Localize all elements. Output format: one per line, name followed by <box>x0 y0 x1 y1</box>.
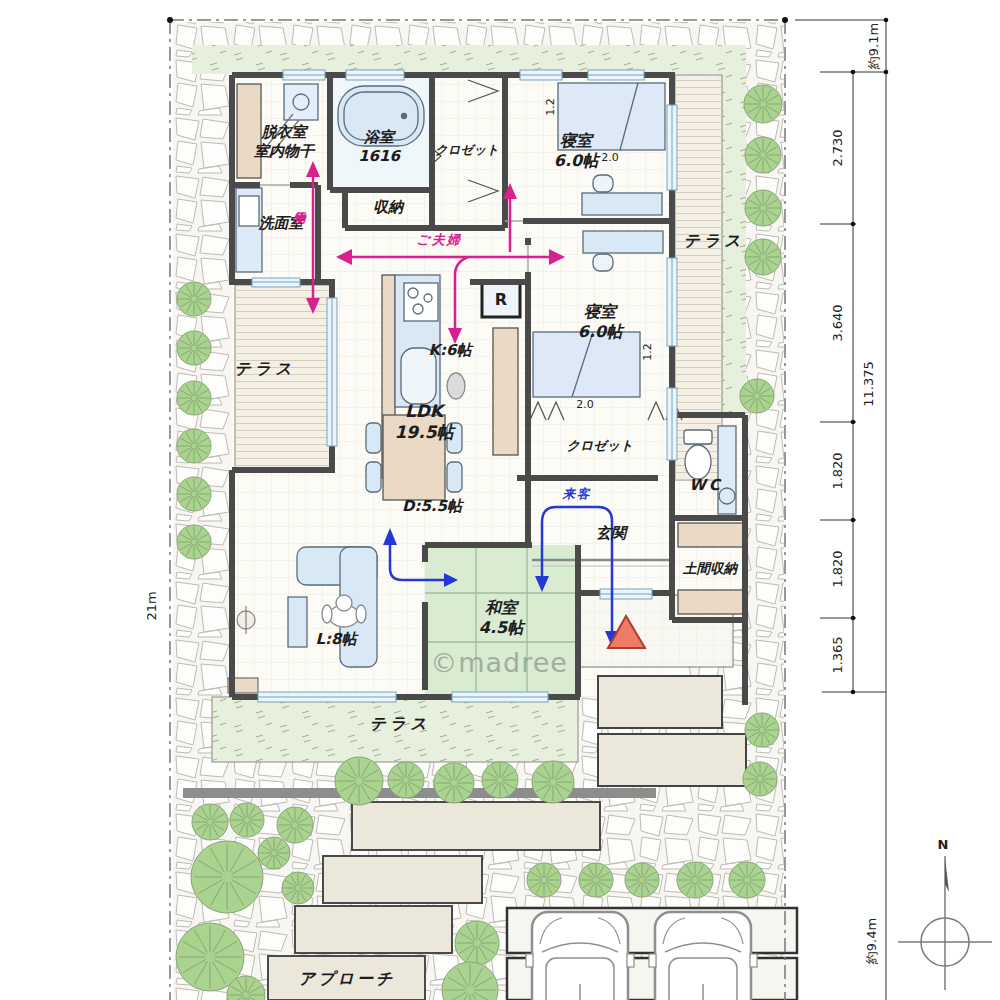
tatami-floor <box>425 545 578 694</box>
entrance-porch <box>580 595 746 786</box>
desk-icon <box>583 231 663 253</box>
dressing-cabinet <box>237 84 261 178</box>
tree-icon <box>177 525 211 559</box>
compass-icon <box>898 856 992 990</box>
chair-icon <box>593 175 613 192</box>
toilet-icon <box>684 430 712 479</box>
tree-icon <box>177 477 211 511</box>
side-table-icon <box>288 597 307 647</box>
deck-terrace-left <box>235 285 330 468</box>
tree-icon <box>455 921 499 965</box>
tree-icon <box>177 429 211 463</box>
tree-icon <box>625 863 659 897</box>
tree-icon <box>740 379 774 413</box>
tree-icon <box>744 85 782 123</box>
tree-icon <box>258 837 290 869</box>
tree-icon <box>177 331 211 365</box>
tree-icon <box>677 862 713 898</box>
tree-icon <box>277 807 313 843</box>
tree-icon <box>729 862 765 898</box>
tree-icon <box>482 762 518 798</box>
tree-icon <box>527 863 561 897</box>
washing-machine-icon <box>284 84 318 120</box>
tree-icon <box>335 757 383 805</box>
tree-icon <box>745 239 781 275</box>
tree-icon <box>743 762 777 796</box>
chair-icon <box>593 254 613 271</box>
sink-icon <box>401 348 436 404</box>
tree-icon <box>745 137 781 173</box>
doma-cabinet <box>678 590 743 614</box>
tree-icon <box>230 803 264 837</box>
dimension-lines <box>795 18 888 1000</box>
doma-cabinet <box>678 523 743 547</box>
approach-path <box>268 956 425 1000</box>
tree-icon <box>579 863 613 897</box>
bed-icon <box>533 332 640 397</box>
floorplan-page: 脱衣室室内物干 浴室1616 クロゼット 寝室6.0帖 1.2 2.0 収納 洗… <box>0 0 1000 1000</box>
floorplan-canvas <box>0 0 1000 1000</box>
tree-icon <box>177 282 211 316</box>
bed-icon <box>558 83 665 150</box>
stove-icon <box>404 283 438 321</box>
tree-icon <box>282 872 314 904</box>
bathtub-icon <box>338 86 424 146</box>
tree-icon <box>177 381 211 415</box>
fridge-icon <box>482 281 520 317</box>
tree-icon <box>388 762 424 798</box>
stool-icon <box>447 373 465 399</box>
tree-icon <box>745 713 779 747</box>
tree-icon <box>532 761 574 803</box>
tree-icon <box>434 763 474 803</box>
pantry-cabinet <box>493 328 518 455</box>
desk-icon <box>582 193 662 215</box>
parking <box>507 908 797 1000</box>
tree-icon <box>192 804 228 840</box>
tree-icon <box>745 190 781 226</box>
tree-icon <box>191 841 263 913</box>
